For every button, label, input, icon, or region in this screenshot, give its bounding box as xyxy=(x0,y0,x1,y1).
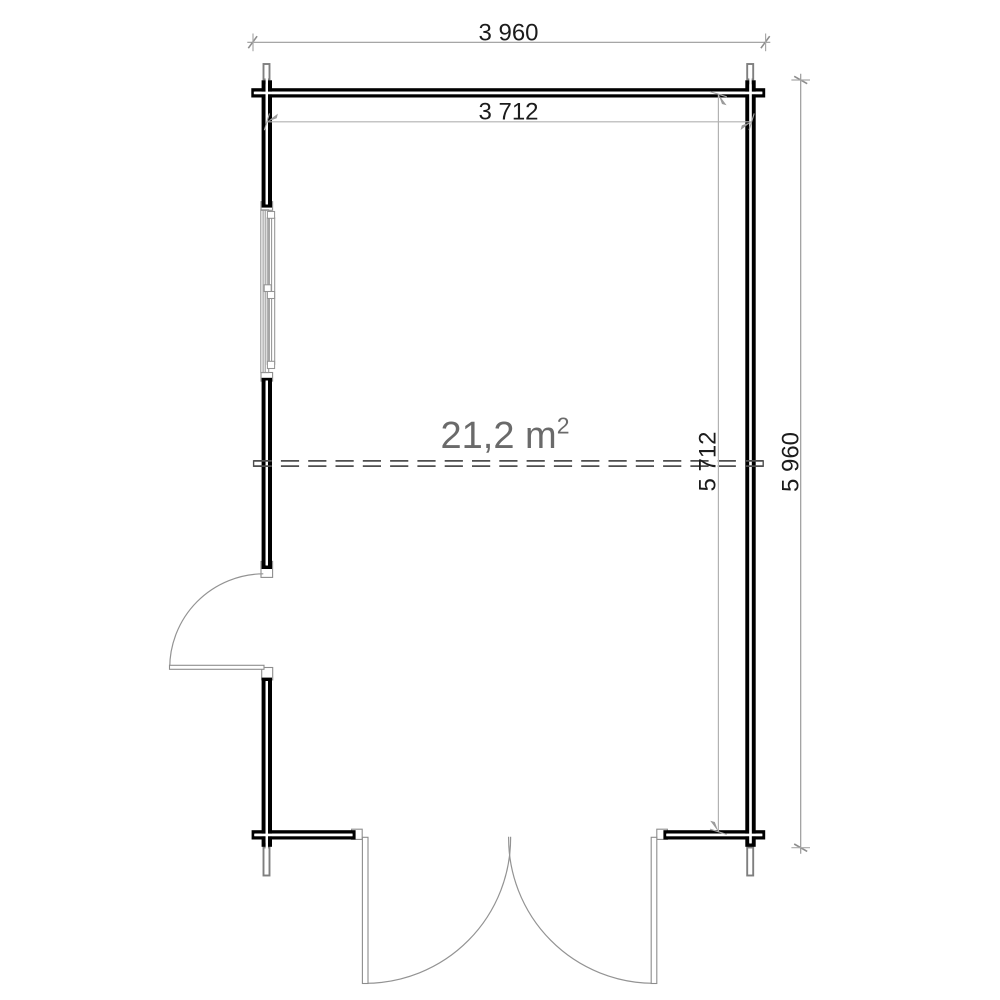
svg-text:5 712: 5 712 xyxy=(694,431,721,491)
svg-text:3 712: 3 712 xyxy=(478,99,538,126)
svg-text:5 960: 5 960 xyxy=(777,432,804,492)
svg-text:21,2 m2: 21,2 m2 xyxy=(441,413,570,458)
svg-text:3 960: 3 960 xyxy=(478,20,538,47)
